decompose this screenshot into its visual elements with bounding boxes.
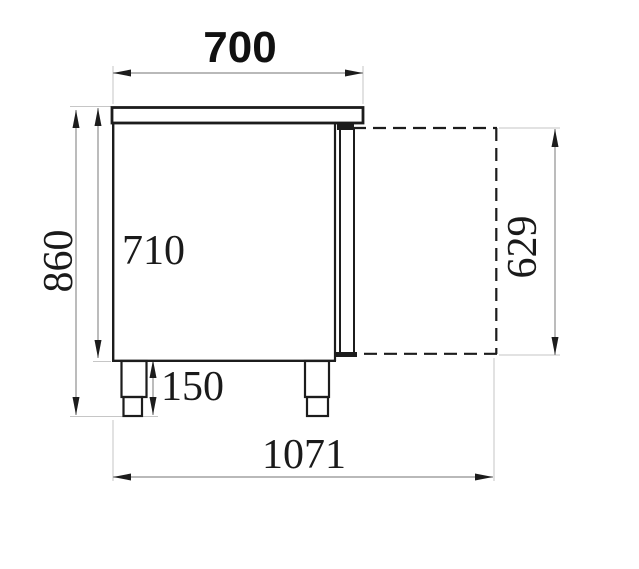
arrow-width-right-icon (345, 70, 363, 77)
technical-drawing-page: 700 860 710 629 150 1071 (0, 0, 639, 569)
door-hinge-bar (337, 124, 354, 130)
dim-label-depth-door-open: 1071 (262, 432, 346, 478)
arrow-total-top-icon (73, 110, 80, 128)
left-leg-upper (122, 361, 147, 397)
countertop (112, 108, 363, 124)
arrow-open-bottom-icon (552, 337, 559, 355)
arrow-open-top-icon (552, 129, 559, 147)
right-leg-upper (305, 361, 329, 397)
door-panel (340, 128, 354, 353)
dim-label-width-top: 700 (203, 23, 276, 72)
dim-label-height-total: 860 (36, 230, 82, 293)
arrow-depth-right-icon (475, 474, 493, 481)
open-door-envelope (353, 128, 497, 354)
dimension-arrowheads (73, 70, 559, 481)
dim-label-height-body: 710 (122, 228, 185, 274)
arrow-leg-top-icon (150, 360, 157, 378)
right-leg-foot (307, 397, 328, 416)
arrow-leg-bottom-icon (150, 397, 157, 415)
side-elevation-drawing: 700 860 710 629 150 1071 (0, 0, 639, 569)
arrow-width-left-icon (113, 70, 131, 77)
arrow-depth-left-icon (113, 474, 131, 481)
left-leg-foot (124, 397, 143, 416)
arrow-body-top-icon (95, 108, 102, 126)
arrow-total-bottom-icon (73, 397, 80, 415)
dim-label-leg-height: 150 (161, 364, 224, 410)
door-bottom-bar (336, 352, 357, 357)
dim-label-height-door-open: 629 (500, 216, 546, 279)
arrow-body-bottom-icon (95, 340, 102, 358)
